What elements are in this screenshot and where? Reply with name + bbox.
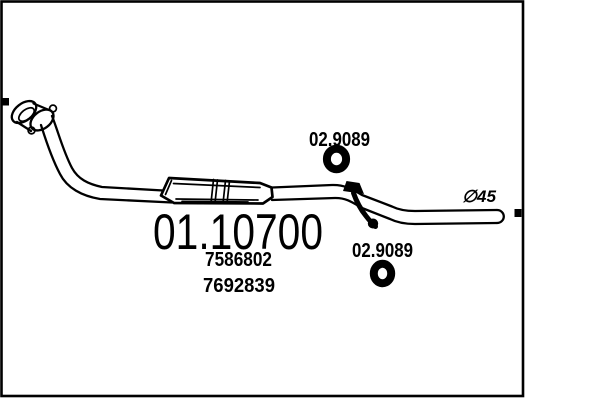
left-border-marker: [3, 98, 10, 106]
ref-number-2: 7692839: [203, 275, 275, 297]
gasket-label-top: 02.9089: [309, 129, 370, 151]
diameter-label: ∅45: [462, 187, 497, 206]
hanger-hook-end: [368, 219, 378, 229]
gasket-ring-top: [327, 149, 346, 169]
inlet-flange-assembly: [8, 97, 58, 135]
gasket-label-bottom: 02.9089: [352, 240, 413, 262]
ref-number-1: 7586802: [205, 249, 272, 271]
right-border-marker: [515, 209, 522, 217]
pipe-front-top-edge: [52, 116, 172, 191]
silencer-bottom-shade-line-1: [176, 199, 258, 200]
centre-silencer: [161, 178, 273, 204]
exhaust-diagram-canvas: 02.9089 02.9089 01.10700 7586802 7692839…: [0, 0, 600, 400]
clamp-bolt-upper: [50, 105, 57, 112]
pipe-end-cap: [497, 210, 504, 223]
mounting-hardware: [343, 181, 378, 229]
gasket-ring-bottom: [374, 264, 391, 283]
flange-mouth-inner: [16, 105, 36, 124]
flange-mouth-outer: [8, 97, 41, 128]
catalog-drawing-page: 02.9089 02.9089 01.10700 7586802 7692839…: [0, 0, 600, 400]
